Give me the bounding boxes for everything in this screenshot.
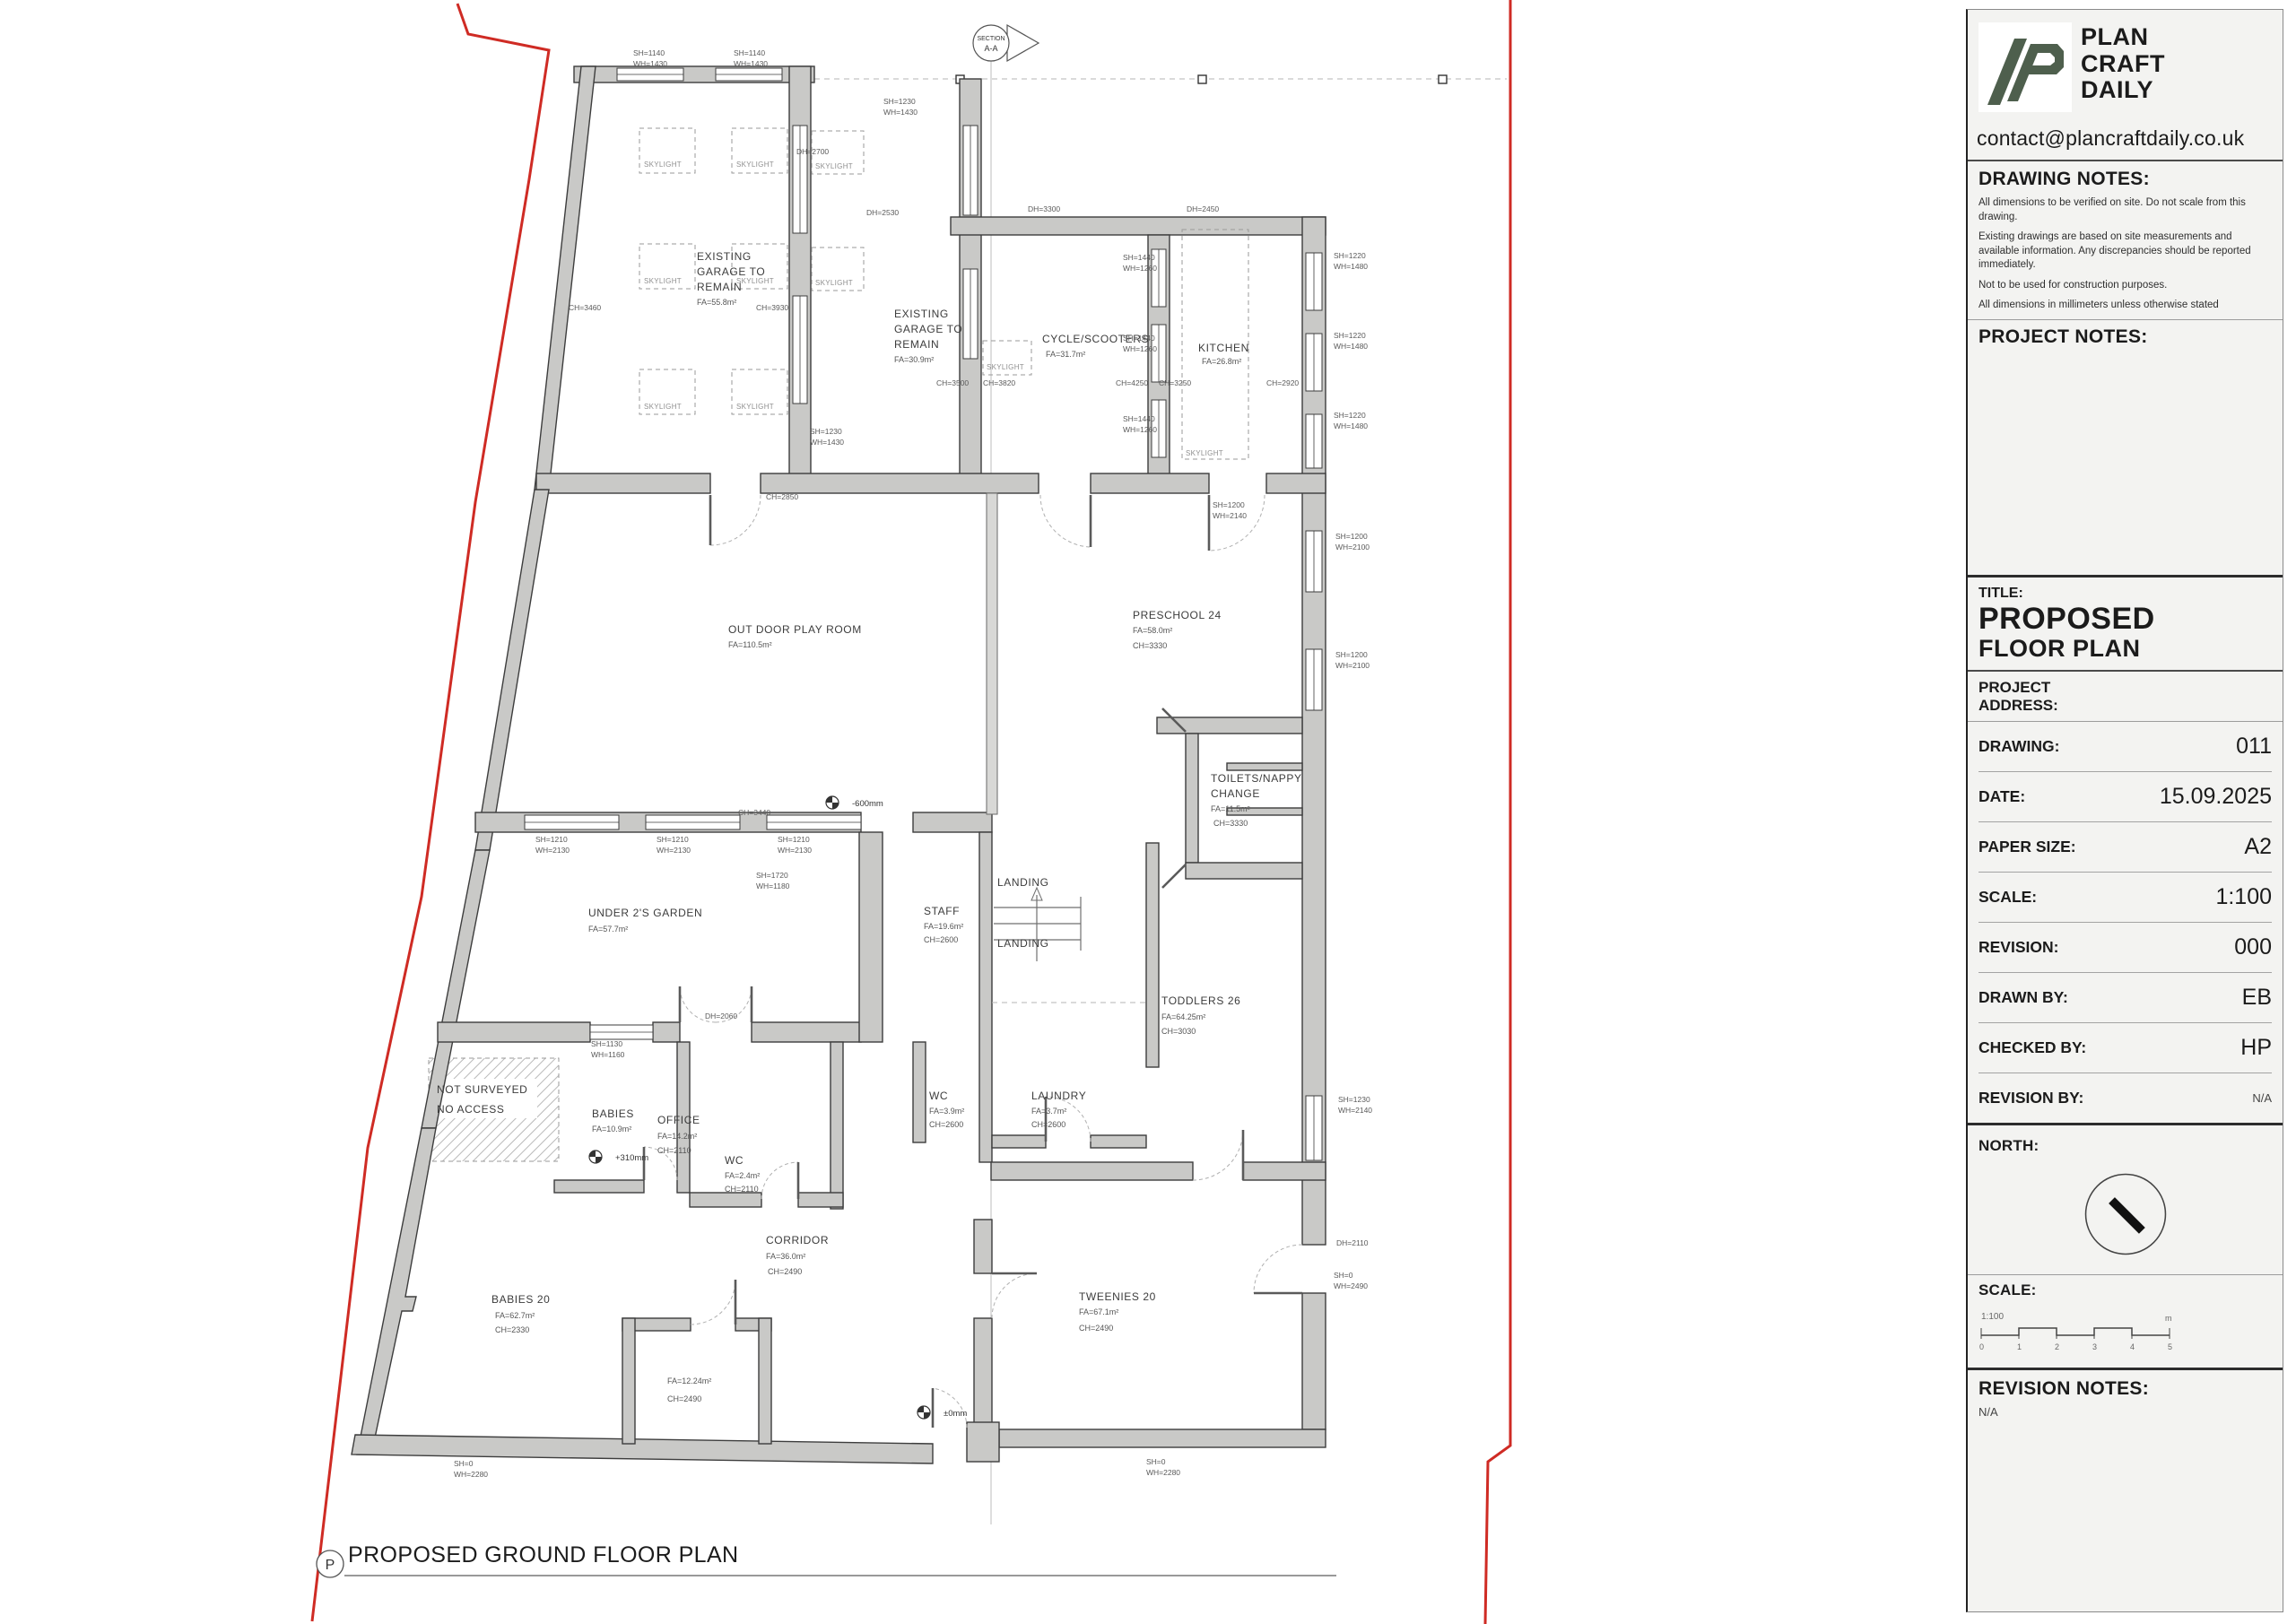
- field-row: DRAWN BY:EB: [1979, 972, 2272, 1022]
- plan-label: CH=3820: [983, 378, 1015, 387]
- plan-label: BABIES 20: [491, 1293, 550, 1306]
- plan-label: GARAGE TO: [894, 323, 962, 335]
- plan-label: WH=2130: [535, 846, 570, 855]
- plan-label: EXISTING: [697, 250, 752, 263]
- plan-label: FA=110.5m²: [728, 640, 772, 649]
- plan-label: DH=2110: [1336, 1238, 1369, 1247]
- plan-label: WH=1260: [1123, 344, 1157, 353]
- caption-title: PROPOSED GROUND FLOOR PLAN: [348, 1542, 738, 1568]
- plan-label: OUT DOOR PLAY ROOM: [728, 623, 862, 636]
- plan-label: SKYLIGHT: [736, 161, 774, 169]
- plan-label: FA=10.9m²: [592, 1125, 631, 1133]
- plan-label: LANDING: [997, 937, 1049, 950]
- field-row: REVISION:000: [1979, 922, 2272, 972]
- plan-label: ±0mm: [944, 1409, 967, 1419]
- plan-label: SKYLIGHT: [1186, 449, 1223, 457]
- plan-label: WH=1480: [1334, 342, 1368, 351]
- caption-marker-letter: P: [326, 1558, 335, 1573]
- company-logo-icon: [1979, 22, 2072, 112]
- plan-label: FA=62.7m²: [495, 1311, 535, 1320]
- revision-notes-value: N/A: [1979, 1405, 2272, 1419]
- plan-label: CH=3440: [738, 808, 770, 817]
- field-label: SCALE:: [1979, 888, 2037, 907]
- revision-notes-heading: REVISION NOTES:: [1979, 1378, 2272, 1400]
- drawing-notes: All dimensions to be verified on site. D…: [1979, 196, 2272, 313]
- plan-label: SH=1230: [1338, 1095, 1370, 1104]
- plan-label: FA=3.9m²: [929, 1107, 964, 1116]
- plan-label: LANDING: [997, 876, 1049, 889]
- scale-unit: m: [2165, 1314, 2172, 1323]
- plan-label: CH=4250: [1116, 378, 1148, 387]
- field-row: PAPER SIZE:A2: [1979, 821, 2272, 872]
- plan-label: SKYLIGHT: [736, 403, 774, 411]
- plan-label: FA=58.0m²: [1133, 626, 1172, 635]
- plan-label: SH=1210: [778, 835, 810, 844]
- project-notes-heading: PROJECT NOTES:: [1979, 326, 2272, 348]
- plan-label: NOT SURVEYED: [437, 1083, 527, 1096]
- plan-label: WH=1430: [810, 438, 844, 447]
- plan-label: SKYLIGHT: [815, 162, 853, 170]
- plan-label: FA=55.8m²: [697, 298, 736, 307]
- sheet-title-line2: FLOOR PLAN: [1979, 635, 2272, 663]
- plan-label: CH=2600: [1031, 1120, 1065, 1129]
- field-label: REVISION BY:: [1979, 1089, 2083, 1107]
- plan-label: SH=1140: [734, 48, 765, 57]
- plan-label: WH=2140: [1213, 511, 1247, 520]
- plan-label: WH=1160: [591, 1050, 625, 1059]
- plan-label: FA=64.25m²: [1161, 1012, 1205, 1021]
- field-label: CHECKED BY:: [1979, 1038, 2086, 1057]
- plan-label: FA=2.4m²: [725, 1171, 760, 1180]
- field-value: HP: [2240, 1035, 2272, 1061]
- plan-label: BABIES: [592, 1107, 634, 1120]
- brand-line: DAILY: [2081, 77, 2165, 104]
- plan-label: FA=36.0m²: [766, 1252, 805, 1261]
- field-row: SCALE:1:100: [1979, 872, 2272, 922]
- plan-label: NO ACCESS: [437, 1103, 504, 1116]
- plan-label: SH=1200: [1213, 500, 1245, 509]
- plan-label: SH=1210: [535, 835, 568, 844]
- plan-label: REMAIN: [894, 338, 939, 351]
- plan-label: WH=2280: [454, 1470, 488, 1479]
- field-label: DATE:: [1979, 787, 2025, 806]
- plan-label: FA=3.7m²: [1031, 1107, 1066, 1116]
- plan-label: WH=1430: [883, 108, 918, 117]
- plan-label: WH=1430: [734, 59, 768, 68]
- plan-label: CH=3250: [1159, 378, 1191, 387]
- project-address-label: PROJECT ADDRESS:: [1979, 679, 2272, 714]
- plan-label: SH=1200: [1335, 532, 1368, 541]
- plan-label: WH=2130: [657, 846, 691, 855]
- plan-label: FA=19.6m²: [924, 922, 963, 931]
- plan-label: FA=30.9m²: [894, 355, 934, 364]
- plan-label: SH=1210: [657, 835, 689, 844]
- plan-label: CH=2490: [667, 1394, 701, 1403]
- plan-label: CH=2850: [766, 492, 798, 501]
- drawing-sheet: { "colors":{"logo_green":"#4e5f4d","boun…: [0, 0, 2296, 1624]
- plan-label: WH=1480: [1334, 421, 1368, 430]
- field-row: CHECKED BY:HP: [1979, 1022, 2272, 1073]
- plan-label: REMAIN: [697, 281, 742, 293]
- plan-label: SH=1220: [1334, 411, 1366, 420]
- plan-label: DH=3300: [1028, 204, 1060, 213]
- scale-section: SCALE: 1:100 012345 m: [1979, 1281, 2272, 1359]
- plan-label: SH=1220: [1334, 251, 1366, 260]
- plan-label: SH=0: [1334, 1271, 1353, 1280]
- scale-bar: 1:100 012345 m: [1979, 1308, 2203, 1355]
- plan-label: WH=2100: [1335, 661, 1370, 670]
- plan-label: SH=1130: [591, 1039, 622, 1048]
- plan-label: SH=1200: [1335, 650, 1368, 659]
- plan-label: SH=1720: [756, 871, 788, 880]
- plan-label: SH=1140: [633, 48, 665, 57]
- plan-label: SKYLIGHT: [736, 277, 774, 285]
- contact-email: contact@plancraftdaily.co.uk: [1977, 126, 2272, 151]
- plan-label: STAFF: [924, 905, 960, 917]
- section-marker-icon: SECTION A-A: [973, 25, 1039, 61]
- plan-label: EXISTING: [894, 308, 949, 320]
- north-compass-icon: [2074, 1162, 2178, 1266]
- scale-label: SCALE:: [1979, 1281, 2272, 1299]
- plan-label: FA=31.7m²: [1046, 350, 1085, 359]
- plan-label: WH=2280: [1146, 1468, 1180, 1477]
- sheet-title-line1: PROPOSED: [1979, 604, 2272, 636]
- plan-label: WH=1180: [756, 881, 790, 890]
- brand-header: PLAN CRAFT DAILY: [1979, 22, 2272, 112]
- field-label: REVISION:: [1979, 938, 2058, 957]
- field-label: PAPER SIZE:: [1979, 838, 2076, 856]
- plan-label: CH=2110: [725, 1185, 759, 1194]
- plan-label: FA=14.2m²: [657, 1132, 697, 1141]
- scale-bar-ticks: 012345: [1979, 1328, 2172, 1351]
- scale-tick-label: 5: [2168, 1342, 2172, 1351]
- drawing-note: Existing drawings are based on site meas…: [1979, 230, 2272, 273]
- field-row: DATE:15.09.2025: [1979, 771, 2272, 821]
- plan-label: CH=3330: [1133, 641, 1167, 650]
- plan-label: CH=2490: [1079, 1324, 1113, 1333]
- plan-label: DH=2450: [1187, 204, 1219, 213]
- plan-label: SH=1440: [1123, 334, 1155, 343]
- plan-label: LAUNDRY: [1031, 1090, 1086, 1102]
- plan-label: TWEENIES 20: [1079, 1290, 1156, 1303]
- field-row: REVISION BY:N/A: [1979, 1073, 2272, 1123]
- plan-label: CORRIDOR: [766, 1234, 829, 1246]
- plan-label: CH=2330: [495, 1325, 529, 1334]
- plan-label: TOILETS/NAPPY: [1211, 772, 1302, 785]
- field-label: DRAWING:: [1979, 737, 2059, 756]
- plan-label: CHANGE: [1211, 787, 1260, 800]
- title-block-fields: DRAWING:011DATE:15.09.2025PAPER SIZE:A2S…: [1979, 722, 2272, 1123]
- drawing-note: All dimensions in millimeters unless oth…: [1979, 299, 2272, 313]
- scale-tick-label: 3: [2092, 1342, 2097, 1351]
- plan-label: CH=2600: [929, 1120, 963, 1129]
- field-row: DRAWING:011: [1979, 722, 2272, 771]
- plan-label: SH=1220: [1334, 331, 1366, 340]
- plan-label: OFFICE: [657, 1114, 700, 1126]
- plan-label: PRESCHOOL 24: [1133, 609, 1222, 621]
- field-value: EB: [2242, 985, 2272, 1011]
- field-value: A2: [2244, 834, 2272, 860]
- field-value: 000: [2234, 934, 2272, 960]
- plan-label: WC: [725, 1154, 744, 1167]
- north-label: NORTH:: [1979, 1137, 2272, 1155]
- field-label: DRAWN BY:: [1979, 988, 2068, 1007]
- walls-layer: [352, 66, 1326, 1463]
- plan-label: FA=26.8m²: [1202, 357, 1241, 366]
- plan-label: WH=2130: [778, 846, 812, 855]
- plan-label: WH=1480: [1334, 262, 1368, 271]
- plan-label: WH=2140: [1338, 1106, 1372, 1115]
- plan-label: UNDER 2'S GARDEN: [588, 907, 702, 919]
- field-value: N/A: [2252, 1091, 2272, 1105]
- plan-label: CH=2490: [768, 1267, 802, 1276]
- plan-label: SH=0: [1146, 1457, 1166, 1466]
- plan-label: CH=2920: [1266, 378, 1299, 387]
- plan-label: FA=12.24m²: [667, 1376, 711, 1385]
- scale-tick-label: 1: [2017, 1342, 2022, 1351]
- plan-label: +310mm: [615, 1153, 648, 1163]
- plan-label: SKYLIGHT: [987, 363, 1024, 371]
- plan-label: WH=2100: [1335, 543, 1370, 551]
- plan-label: CH=3500: [936, 378, 969, 387]
- plan-label: DH=2700: [796, 147, 829, 156]
- brand-line: CRAFT: [2081, 51, 2165, 78]
- floor-plan-drawing: SECTION A-A: [0, 0, 2296, 1624]
- scale-ratio: 1:100: [1981, 1312, 2004, 1322]
- north-section: NORTH:: [1979, 1133, 2272, 1268]
- plan-label: WH=1260: [1123, 425, 1157, 434]
- plan-label: SH=1440: [1123, 414, 1155, 423]
- plan-label: WH=1430: [633, 59, 667, 68]
- plan-label: CH=3930: [756, 303, 788, 312]
- plan-label: SKYLIGHT: [815, 279, 853, 287]
- field-value: 15.09.2025: [2160, 784, 2272, 810]
- plan-label: GARAGE TO: [697, 265, 765, 278]
- drawing-notes-heading: DRAWING NOTES:: [1979, 169, 2272, 190]
- plan-label: FA=11.5m²: [1211, 804, 1250, 813]
- drawing-note: Not to be used for construction purposes…: [1979, 279, 2272, 293]
- drawing-note: All dimensions to be verified on site. D…: [1979, 196, 2272, 224]
- scale-tick-label: 2: [2055, 1342, 2059, 1351]
- section-marker-line2: A-A: [984, 44, 997, 53]
- scale-tick-label: 0: [1979, 1342, 1984, 1351]
- plan-label: CH=2600: [924, 935, 958, 944]
- section-marker-line1: SECTION: [977, 36, 1004, 42]
- plan-label: SKYLIGHT: [644, 161, 682, 169]
- plan-label: CH=3460: [569, 303, 601, 312]
- plan-label: SH=1440: [1123, 253, 1155, 262]
- scale-tick-label: 4: [2130, 1342, 2135, 1351]
- plan-label: FA=57.7m²: [588, 925, 628, 934]
- plan-label: DH=2060: [705, 1012, 737, 1020]
- plan-label: WC: [929, 1090, 948, 1102]
- brand-line: PLAN: [2081, 24, 2165, 51]
- plan-label: CH=2110: [657, 1146, 691, 1155]
- plan-label: CH=3030: [1161, 1027, 1196, 1036]
- plan-label: SH=1230: [810, 427, 842, 436]
- plan-caption: P PROPOSED GROUND FLOOR PLAN: [317, 1542, 1336, 1577]
- plan-label: -600mm: [852, 799, 883, 809]
- plan-label: CH=3330: [1213, 819, 1248, 828]
- field-value: 011: [2236, 734, 2272, 760]
- plan-label: WH=2490: [1334, 1281, 1368, 1290]
- plan-label: SKYLIGHT: [644, 277, 682, 285]
- plan-label: SH=0: [454, 1459, 474, 1468]
- plan-label: DH=2530: [866, 208, 899, 217]
- plan-label: TODDLERS 26: [1161, 994, 1240, 1007]
- title-block: PLAN CRAFT DAILY contact@plancraftdaily.…: [1966, 9, 2283, 1612]
- project-notes-empty: [1979, 353, 2272, 567]
- plan-label: SH=1230: [883, 97, 916, 106]
- plan-label: WH=1260: [1123, 264, 1157, 273]
- field-value: 1:100: [2215, 884, 2272, 910]
- brand-name: PLAN CRAFT DAILY: [2081, 24, 2165, 104]
- plan-label: KITCHEN: [1198, 342, 1249, 354]
- plan-label: FA=67.1m²: [1079, 1307, 1118, 1316]
- title-label: TITLE:: [1979, 586, 2272, 602]
- plan-label: SKYLIGHT: [644, 403, 682, 411]
